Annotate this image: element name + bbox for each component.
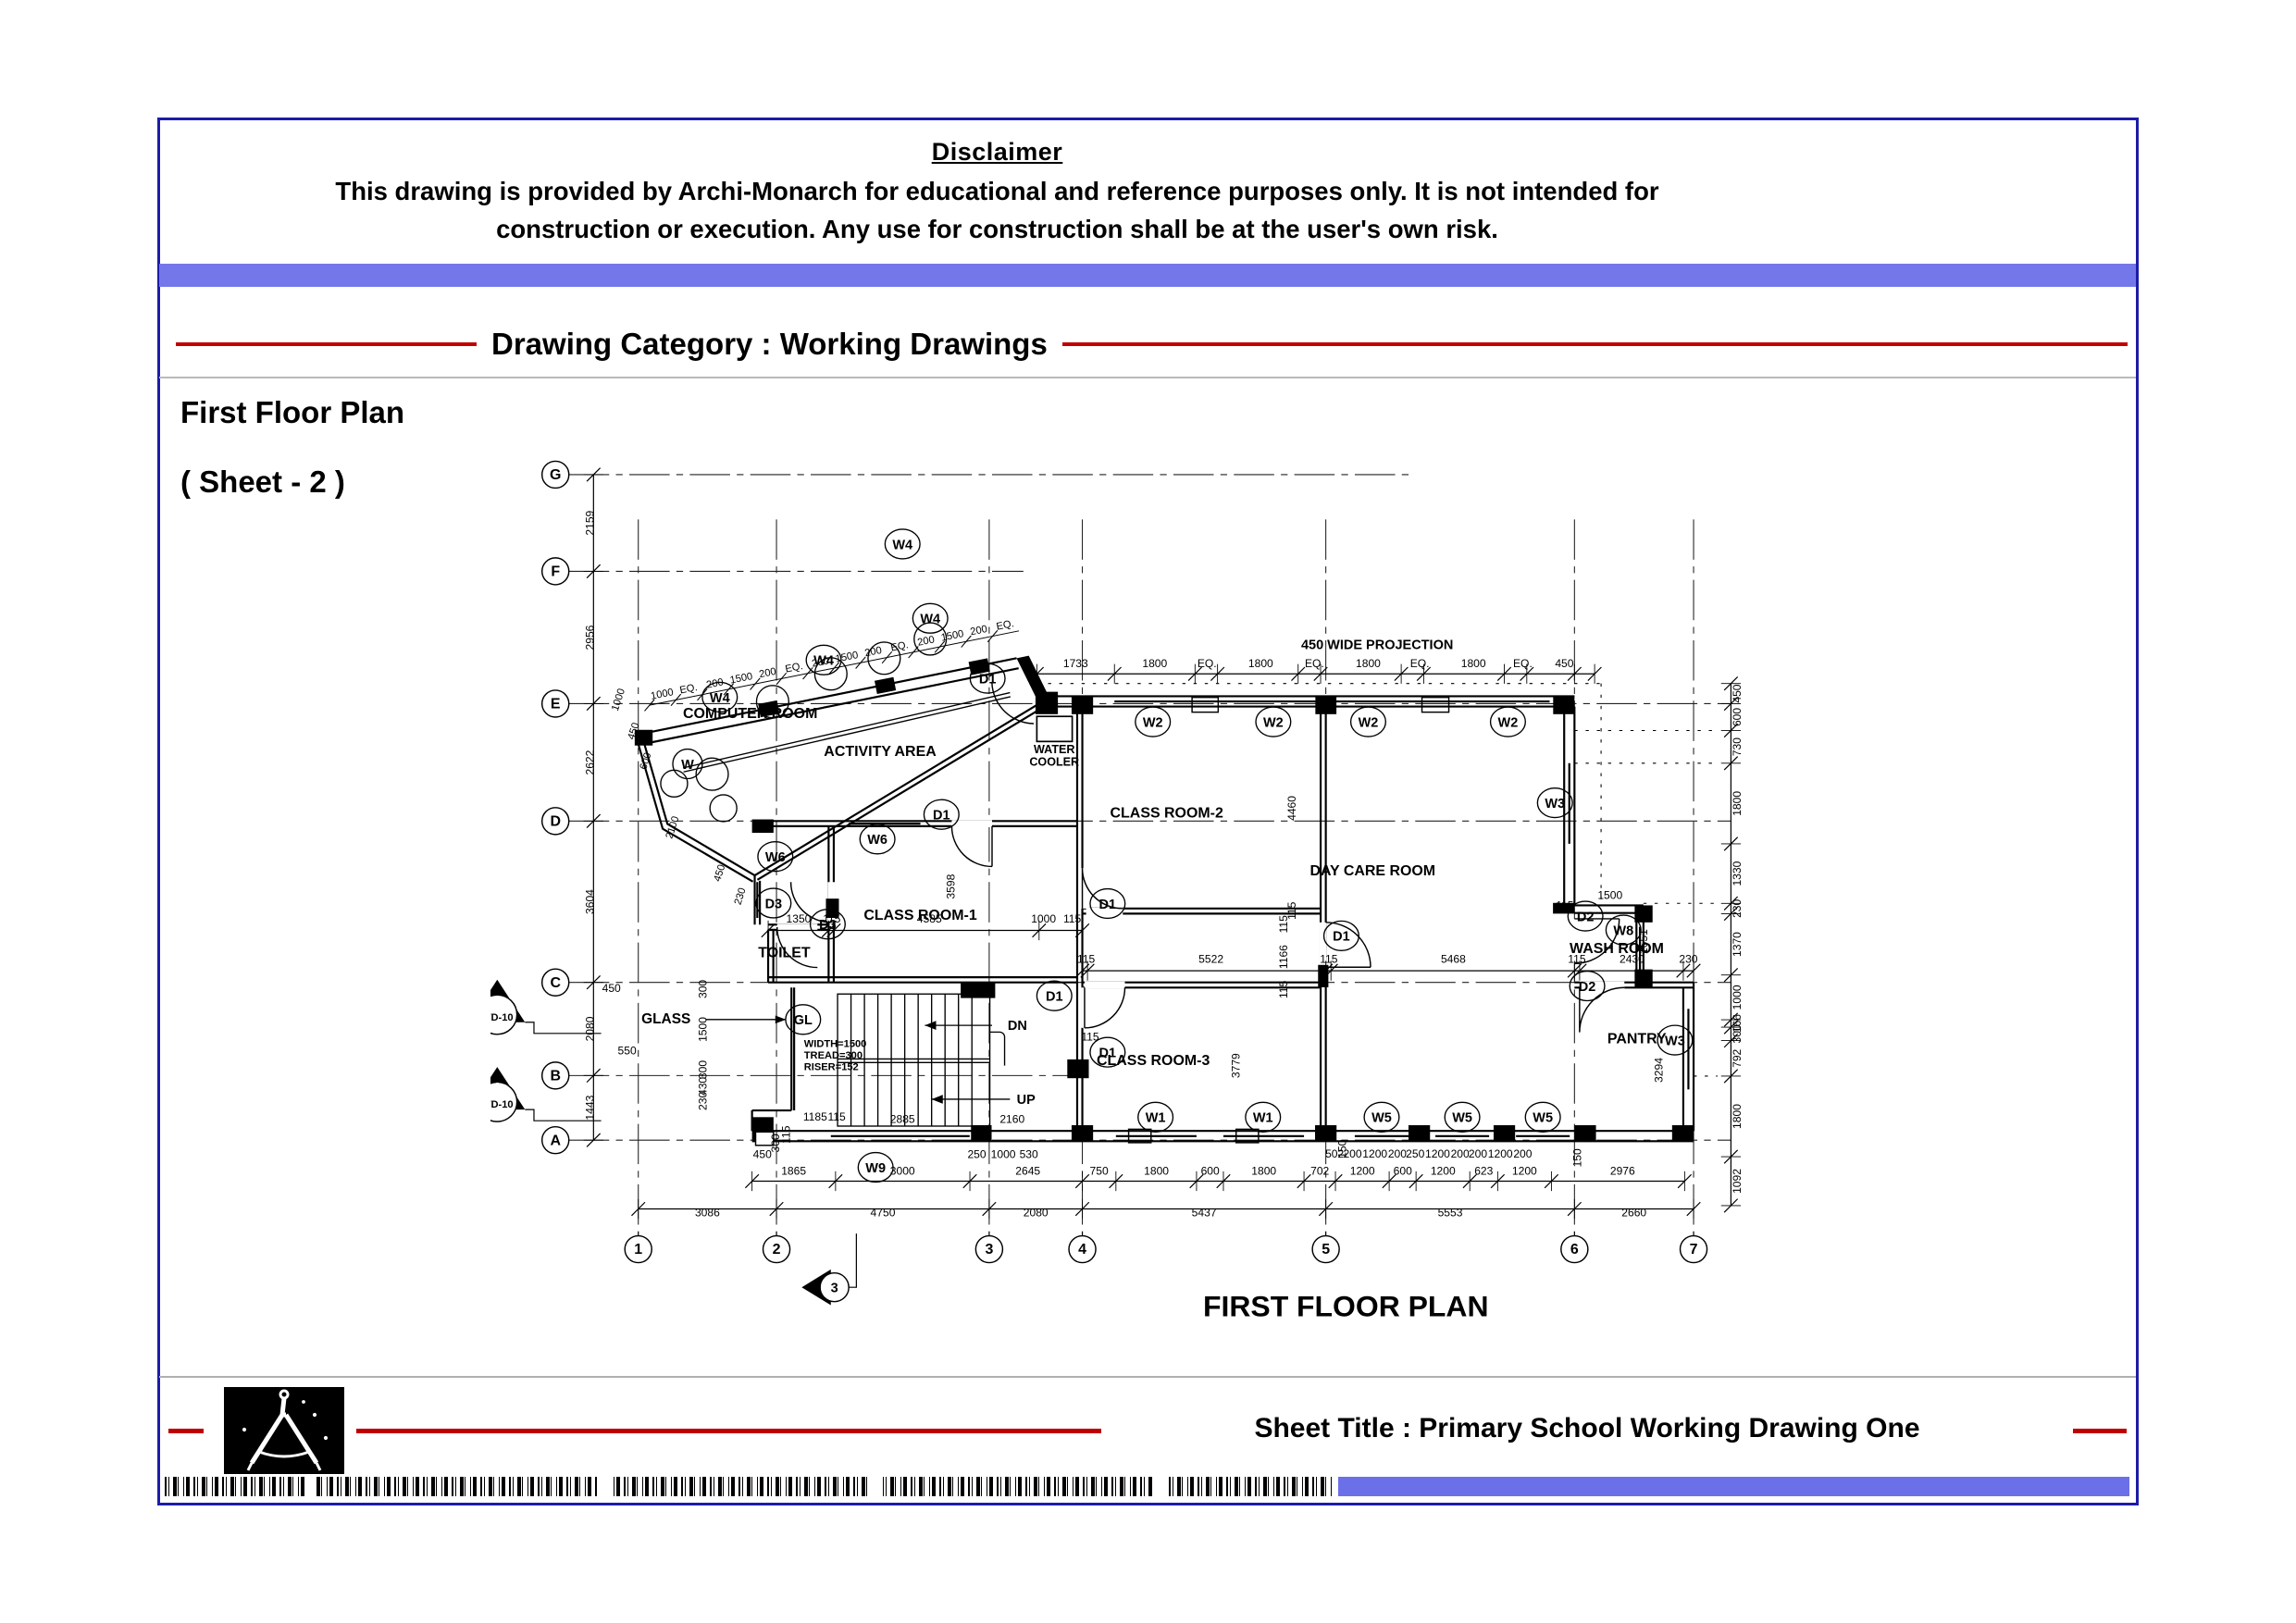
dim-text: 450 (1731, 684, 1744, 702)
projection-label: 450 WIDE PROJECTION (1301, 638, 1453, 653)
drawing-sheet: Disclaimer This drawing is provided by A… (157, 118, 2139, 1505)
tag-label-d1: D1 (1099, 1046, 1117, 1060)
dim-text: 1200 (1488, 1147, 1513, 1160)
dim-text: EQ. (1305, 657, 1324, 670)
tag-label-w4: W4 (920, 613, 940, 627)
dim-text: 1800 (1251, 1164, 1276, 1177)
dim-text: 2080 (1024, 1206, 1049, 1219)
dim-text: 2976 (1610, 1164, 1635, 1177)
category-redline-left (176, 342, 477, 346)
dim-text: 250 (967, 1147, 986, 1160)
dim-text: 2159 (583, 510, 596, 535)
dim-text: 3779 (1230, 1053, 1243, 1078)
dim-text: 200 (1388, 1147, 1407, 1160)
dim-text: 115 (1556, 898, 1574, 911)
grid-bubble-label-B: B (550, 1068, 561, 1084)
dim-text: 3000 (890, 1164, 915, 1177)
category-heading: Drawing Category : Working Drawings (477, 327, 1062, 362)
svg-text:WD-10: WD-10 (490, 1099, 514, 1110)
dim-text: 1166 (1277, 945, 1290, 969)
dim-text: 1200 (1350, 1164, 1375, 1177)
floor-plan-drawing: GFEDCBA123456721592956262236042080144345… (490, 390, 1771, 1334)
tag-label-d1: D1 (1046, 990, 1063, 1005)
room-label: CLASS ROOM-1 (863, 908, 976, 923)
tag-label-w4: W4 (813, 654, 834, 669)
dim-text: 250 (1406, 1147, 1424, 1160)
dim-text: 1500 (1597, 889, 1622, 902)
plan-title: First Floor Plan (180, 395, 404, 430)
dim-text: 1092 (1731, 1169, 1744, 1194)
grid-bubble-label-E: E (551, 697, 561, 712)
dim-text: 1733 (1063, 657, 1088, 670)
tag-label-w5: W5 (1533, 1111, 1553, 1126)
wing-side-dim: 450 (712, 863, 727, 883)
tag-label-gl: GL (794, 1013, 813, 1028)
dn-label: DN (1008, 1019, 1027, 1034)
dim-text: 115 (1277, 915, 1290, 934)
tag-label-w1: W1 (1146, 1111, 1166, 1126)
tag-label-w5: W5 (1371, 1111, 1392, 1126)
dim-text: 115 (780, 1125, 793, 1144)
dim-text: 115 (1063, 912, 1082, 925)
water-cooler-label: COOLER (1029, 755, 1079, 768)
tag-label-w6: W6 (867, 833, 887, 848)
tag-label-d3: D3 (765, 897, 783, 911)
dim-text: 5468 (1441, 952, 1466, 965)
dim-text: 1200 (1425, 1147, 1450, 1160)
dim-text: 1865 (781, 1164, 806, 1177)
dim-text: 300 (696, 980, 709, 998)
grid-bubble-label-F: F (551, 564, 560, 579)
disclaimer-text: This drawing is provided by Archi-Monarc… (157, 172, 1837, 248)
up-label: UP (1017, 1093, 1036, 1108)
dim-text: 230 (696, 1092, 709, 1110)
dim-text: 1200 (1512, 1164, 1537, 1177)
wing-dim-text: 200 (969, 624, 987, 638)
dim-text: 200 (1513, 1147, 1532, 1160)
svg-text:WD-10: WD-10 (490, 1012, 514, 1023)
dim-text: 200 (1451, 1147, 1470, 1160)
wing-dim-text: 200 (863, 645, 882, 659)
disclaimer-title: Disclaimer (157, 138, 1837, 167)
wing-dim-text: 200 (916, 634, 935, 648)
tag-label-d2: D2 (1577, 910, 1595, 924)
room-label: DAY CARE ROOM (1309, 863, 1435, 879)
category-redline-right (1062, 342, 2128, 346)
tag-label-w6: W6 (765, 850, 786, 865)
dim-text: 3598 (944, 873, 957, 898)
dim-text: 1800 (1144, 1164, 1169, 1177)
tag-label-d1: D1 (979, 672, 997, 687)
dim-text: 1370 (1731, 932, 1744, 957)
footer-redline-dash-left (168, 1429, 204, 1433)
dim-text: 502 (1325, 1147, 1344, 1160)
glass-label: GLASS (641, 1011, 690, 1027)
dim-text: 1000 (1731, 985, 1744, 1010)
grid-bubble-label-D: D (550, 813, 561, 829)
dim-text: 2885 (890, 1113, 915, 1126)
dim-text: 1350 (787, 912, 812, 925)
dim-text: 2160 (999, 1113, 1024, 1126)
svg-text:3: 3 (831, 1282, 838, 1296)
dim-chain-0 (584, 468, 603, 1147)
dim-text: 5522 (1198, 952, 1223, 965)
dim-text: 150 (1570, 1148, 1583, 1167)
dim-text: 450 (602, 982, 621, 995)
dim-text: 450 (753, 1147, 772, 1160)
dim-text: 4750 (871, 1206, 896, 1219)
dim-text: 2956 (583, 625, 596, 650)
dim-text: 115 (827, 1110, 846, 1123)
dim-text: 115 (1077, 952, 1096, 965)
dim-text: 623 (1474, 1164, 1493, 1177)
wing-dim-text: 200 (705, 676, 724, 690)
plan-caption: FIRST FLOOR PLAN (1203, 1290, 1489, 1323)
wing-dim-text: EQ. (996, 618, 1015, 632)
dim-text: 1443 (583, 1095, 596, 1120)
tag-label-w3: W3 (1665, 1034, 1685, 1048)
dim-text: 2645 (1015, 1164, 1040, 1177)
wing-side-dim: 230 (733, 886, 749, 906)
plan-subtitle: ( Sheet - 2 ) (180, 465, 345, 500)
grid-bubble-label-4: 4 (1078, 1242, 1086, 1258)
tag-label-d1: D1 (1333, 930, 1350, 945)
tag-label-w: W (681, 758, 694, 773)
tag-label-w2: W2 (1263, 715, 1284, 730)
dim-text: 1800 (1731, 1104, 1744, 1129)
dim-text: 300 (1731, 1024, 1744, 1043)
dim-text: 2660 (1621, 1206, 1646, 1219)
dim-text: 200 (1469, 1147, 1487, 1160)
dim-text: 230 (1679, 952, 1697, 965)
tag-label-w4: W4 (892, 538, 912, 552)
dim-text: 5437 (1192, 1206, 1217, 1219)
dim-text: 3604 (583, 889, 596, 914)
dim-text: 1000 (991, 1147, 1016, 1160)
dim-text: 200 (1343, 1147, 1361, 1160)
grid-bubble-label-3: 3 (985, 1242, 993, 1258)
dim-text: 4460 (1285, 796, 1298, 821)
dim-text: 1200 (1431, 1164, 1456, 1177)
stair-note: WIDTH=1500 (804, 1038, 867, 1049)
dim-text: 450 (1555, 657, 1573, 670)
dim-text: 3086 (695, 1206, 720, 1219)
room-label: CLASS ROOM-2 (1111, 806, 1223, 822)
dim-text: 2080 (583, 1016, 596, 1041)
dim-text: 3294 (1652, 1058, 1665, 1083)
dim-text: 792 (1731, 1048, 1744, 1067)
dim-text: 230 (1731, 898, 1744, 917)
dim-text: 750 (1090, 1164, 1109, 1177)
footer-redline-main (356, 1429, 1101, 1433)
wing-dim-text: EQ. (678, 682, 698, 696)
dim-text: 730 (1731, 737, 1744, 756)
dim-text: 1800 (1461, 657, 1486, 670)
tag-label-w4: W4 (710, 691, 730, 706)
room-label: COMPUTER ROOM (683, 706, 817, 722)
wing-dim-text: 200 (758, 666, 776, 680)
tag-label-w2: W2 (1143, 715, 1163, 730)
dim-text: EQ. (1198, 657, 1217, 670)
dim-text: 300 (696, 1060, 709, 1079)
wing-side-dim: 1000 (610, 688, 627, 712)
dim-text: 115 (1277, 981, 1290, 999)
dim-text: 1800 (1142, 657, 1167, 670)
disclaimer-block: Disclaimer This drawing is provided by A… (157, 138, 1837, 248)
dim-text: 600 (1201, 1164, 1220, 1177)
sheet-title: Sheet Title : Primary School Working Dra… (1106, 1413, 2068, 1444)
dim-text: 600 (1394, 1164, 1412, 1177)
tag-label-w9: W9 (865, 1161, 886, 1176)
dim-text: 2622 (583, 750, 596, 774)
footer-separator (159, 1376, 2136, 1378)
dim-text: 1000 (1031, 912, 1056, 925)
tag-label-d1: D1 (933, 809, 950, 824)
grid-bubble-label-1: 1 (634, 1242, 642, 1258)
bottom-accent-bar (1338, 1477, 2129, 1496)
tag-label-d2: D2 (1579, 980, 1596, 995)
grid-bubble-label-6: 6 (1570, 1242, 1579, 1258)
dim-text: 702 (1310, 1164, 1329, 1177)
grid-bubble-label-5: 5 (1322, 1242, 1330, 1258)
stair-note: RISER=152 (804, 1062, 859, 1073)
dim-chain-4 (631, 1199, 1700, 1219)
dim-text: 1330 (1731, 861, 1744, 886)
grid-bubble-label-2: 2 (773, 1242, 781, 1258)
tag-label-d1: D1 (1099, 898, 1117, 912)
dim-text: 1500 (696, 1017, 709, 1042)
accent-bar (159, 264, 2136, 287)
separator-line (159, 377, 2136, 378)
water-cooler-label: WATER (1034, 743, 1074, 756)
wing-dim-text: EQ. (890, 639, 910, 653)
room-label: TOILET (758, 946, 811, 961)
svg-text:1: 1 (493, 1081, 502, 1096)
tag-label-d3: D3 (819, 918, 837, 933)
category-row: Drawing Category : Working Drawings (157, 323, 2139, 365)
grid-bubble-label-7: 7 (1690, 1242, 1698, 1258)
dim-text: 1185 (803, 1110, 827, 1123)
grid-bubble-label-C: C (550, 975, 561, 991)
dim-text: EQ. (1513, 657, 1533, 670)
tag-label-w3: W3 (1545, 797, 1565, 811)
dim-text: 5553 (1438, 1206, 1463, 1219)
dim-text: 115 (1320, 952, 1338, 965)
section-marker-bottom: 3 (801, 1233, 856, 1305)
footer-redline-dash-right (2073, 1429, 2127, 1433)
tag-label-w8: W8 (1613, 923, 1633, 938)
dim-text: 1800 (1248, 657, 1273, 670)
dim-text: EQ. (1410, 657, 1430, 670)
dim-chain-5 (1075, 960, 1700, 980)
grid-bubble-label-A: A (550, 1133, 561, 1148)
room-label: ACTIVITY AREA (824, 744, 937, 760)
dim-text: 1800 (1731, 791, 1744, 816)
dim-text: 1800 (1356, 657, 1381, 670)
stair-note: TREAD=300 (804, 1050, 863, 1061)
tag-label-w1: W1 (1253, 1111, 1273, 1126)
wing-dim-text: EQ. (785, 661, 804, 675)
tag-label-w2: W2 (1359, 715, 1379, 730)
dim-text: 600 (1731, 708, 1744, 726)
tag-label-w2: W2 (1498, 715, 1519, 730)
svg-text:2: 2 (493, 994, 502, 1010)
grid-bubble-label-G: G (550, 467, 561, 483)
dim-text: 1200 (1362, 1147, 1387, 1160)
dim-text: 530 (1020, 1147, 1038, 1160)
dim-text: 550 (618, 1045, 637, 1058)
company-logo (224, 1387, 344, 1474)
drafting-compass-icon (224, 1387, 344, 1474)
tag-label-w5: W5 (1452, 1111, 1472, 1126)
